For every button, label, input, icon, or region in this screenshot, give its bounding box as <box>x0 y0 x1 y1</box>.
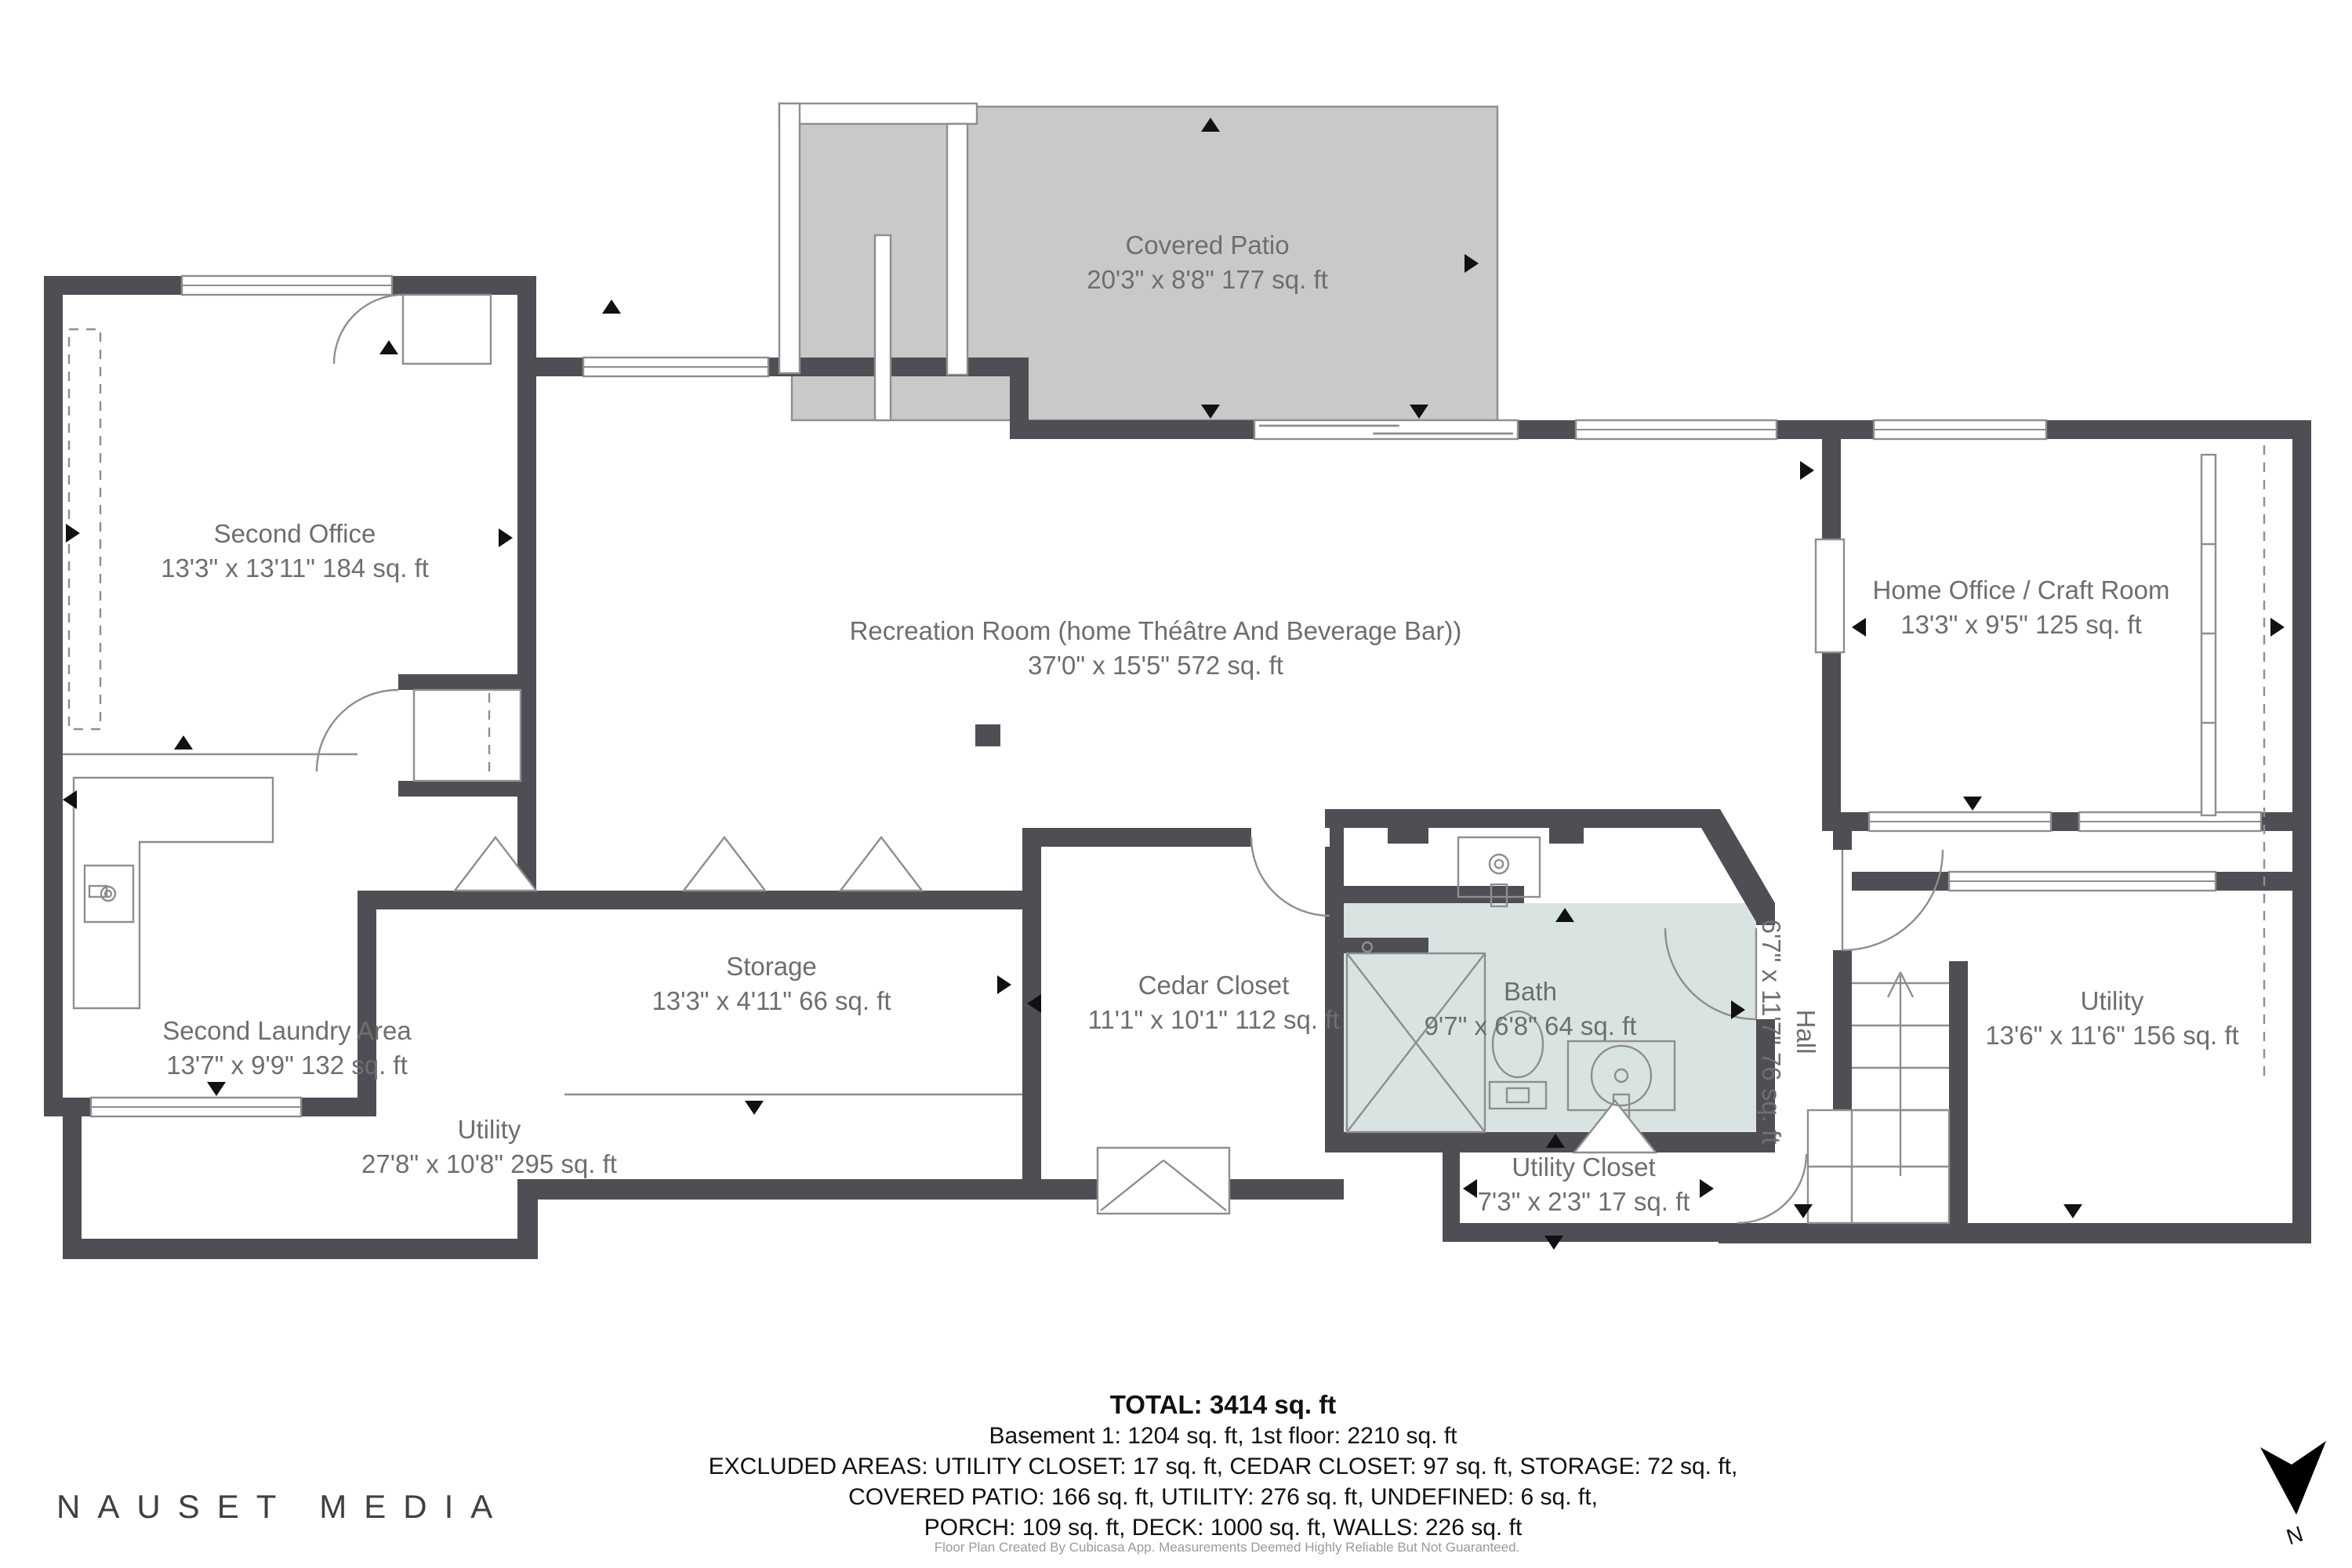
room-dims-recreation-room: 37'0" x 15'5" 572 sq. ft <box>1028 651 1283 680</box>
frame <box>779 103 800 373</box>
room-dims-bath: 9'7" x 6'8" 64 sq. ft <box>1425 1011 1637 1040</box>
room-label-storage: Storage <box>726 952 817 981</box>
room-label-second-office: Second Office <box>214 519 376 548</box>
direction-marker <box>602 299 621 314</box>
wall <box>517 376 536 674</box>
frame <box>414 690 521 781</box>
direction-marker <box>379 340 398 354</box>
frame <box>1816 539 1844 652</box>
room-label-cedar-closet: Cedar Closet <box>1138 971 1290 1000</box>
wall <box>1325 809 1344 1132</box>
door-swing <box>1842 850 1943 950</box>
north-label: N <box>2283 1522 2306 1551</box>
sliding-door <box>1254 420 1518 439</box>
frame <box>2201 455 2216 815</box>
direction-marker <box>1544 1236 1563 1250</box>
wall <box>63 1239 536 1259</box>
room-dims-cedar-closet: 11'1" x 10'1" 112 sq. ft <box>1087 1005 1339 1034</box>
wall <box>398 674 536 690</box>
wall <box>44 276 63 1116</box>
excluded-areas-line-1: EXCLUDED AREAS: UTILITY CLOSET: 17 sq. f… <box>47 1451 2352 1482</box>
room-dims-hall: 6'7" x 11'7" 76 sq. ft <box>1757 920 1786 1145</box>
door-swing <box>317 690 398 771</box>
wall <box>521 674 536 797</box>
drain <box>1490 855 1508 873</box>
frame <box>403 295 491 364</box>
direction-marker <box>1963 797 1982 811</box>
door-swing <box>1251 837 1330 916</box>
wall <box>1325 809 1720 828</box>
room-dims-second-office: 13'3" x 13'11" 184 sq. ft <box>161 554 429 583</box>
room-dims-second-laundry-area: 13'7" x 9'9" 132 sq. ft <box>166 1051 408 1080</box>
room-label-utility-closet: Utility Closet <box>1512 1152 1655 1181</box>
room-dims-utility-closet: 7'3" x 2'3" 17 sq. ft <box>1478 1187 1690 1216</box>
wall <box>975 724 1000 746</box>
wall <box>1443 1223 1737 1242</box>
room-dims-storage: 13'3" x 4'11" 66 sq. ft <box>652 986 891 1015</box>
direction-marker <box>745 1101 764 1115</box>
room-label-home-office-craft-room: Home Office / Craft Room <box>1872 575 2169 604</box>
frame <box>1098 1148 1229 1214</box>
direction-marker <box>66 524 80 543</box>
direction-marker <box>1463 1179 1477 1198</box>
bifold-door <box>840 837 922 891</box>
wall <box>1325 938 1428 953</box>
direction-marker <box>499 528 513 547</box>
wall <box>63 1116 82 1254</box>
wall <box>358 891 564 909</box>
wall <box>546 891 1032 909</box>
frame <box>947 124 967 375</box>
wall <box>1325 886 1524 903</box>
direction-marker <box>1700 1179 1714 1198</box>
north-arrow-icon <box>2248 1436 2342 1518</box>
room-label-recreation-room: Recreation Room (home Théâtre And Bevera… <box>850 616 1462 645</box>
room-label-utility-right: Utility <box>2081 986 2144 1015</box>
wall <box>398 781 536 797</box>
wall <box>358 891 376 1116</box>
direction-marker <box>997 975 1011 994</box>
detail-line <box>1888 972 1900 997</box>
direction-marker <box>207 1082 226 1096</box>
frame <box>875 235 891 420</box>
room-dims-covered-patio: 20'3" x 8'8" 177 sq. ft <box>1087 265 1328 294</box>
direction-marker <box>2063 1204 2082 1218</box>
bifold-door <box>684 837 765 891</box>
wall <box>1022 828 1041 1200</box>
room-label-covered-patio: Covered Patio <box>1125 230 1289 260</box>
wall <box>1388 828 1428 844</box>
room-label-utility-left: Utility <box>458 1115 521 1144</box>
room-dims-utility-left: 27'8" x 10'8" 295 sq. ft <box>361 1149 617 1178</box>
room-label-hall: Hall <box>1791 1010 1820 1054</box>
direction-marker <box>2270 618 2285 637</box>
brand-logo: NAUSET MEDIA <box>56 1488 510 1526</box>
wall <box>44 276 182 295</box>
floor-plan: Covered Patio20'3" x 8'8" 177 sq. ftSeco… <box>0 0 2352 1568</box>
room-dims-utility-right: 13'6" x 11'6" 156 sq. ft <box>1985 1021 2238 1050</box>
wall <box>1949 961 1968 1223</box>
floor-plan-page: Covered Patio20'3" x 8'8" 177 sq. ftSeco… <box>0 0 2352 1568</box>
door-gap <box>1251 828 1330 847</box>
frame <box>779 103 977 124</box>
room-label-bath: Bath <box>1504 977 1557 1006</box>
counter <box>74 778 273 1008</box>
north-arrow: N <box>2244 1436 2346 1548</box>
room-label-second-laundry-area: Second Laundry Area <box>162 1016 412 1045</box>
total-area-line: TOTAL: 3414 sq. ft <box>47 1389 2352 1421</box>
direction-marker <box>1852 618 1866 637</box>
wall <box>392 276 536 295</box>
wall <box>2292 420 2311 1243</box>
door-swing <box>1737 1154 1806 1223</box>
direction-marker <box>1800 461 1814 480</box>
direction-marker <box>63 790 77 809</box>
detail-line <box>1900 972 1913 997</box>
wall <box>1549 828 1584 844</box>
drain <box>1495 860 1503 868</box>
room-dims-home-office-craft-room: 13'3" x 9'5" 125 sq. ft <box>1900 610 2142 639</box>
disclaimer-text: Floor Plan Created By Cubicasa App. Meas… <box>51 1540 2352 1555</box>
floors-area-line: Basement 1: 1204 sq. ft, 1st floor: 2210… <box>47 1421 2352 1451</box>
direction-marker <box>174 735 193 750</box>
wall <box>1719 1223 2311 1243</box>
